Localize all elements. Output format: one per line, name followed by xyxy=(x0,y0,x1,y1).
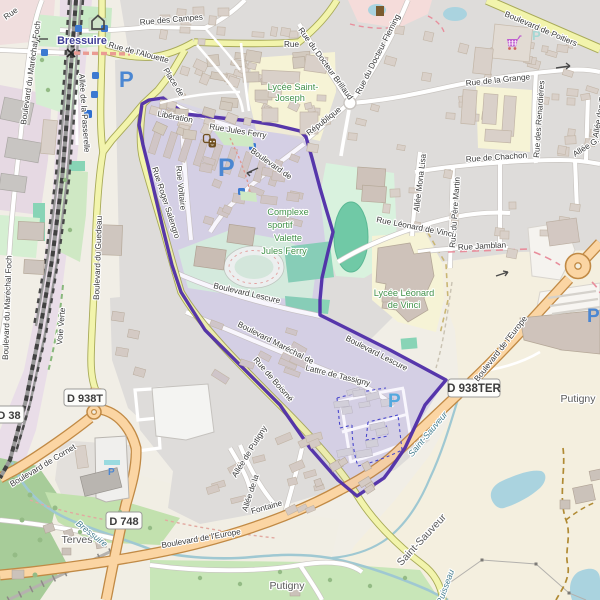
svg-text:Lycée Saint-: Lycée Saint- xyxy=(268,82,319,92)
svg-text:D 748: D 748 xyxy=(109,516,138,528)
svg-text:P: P xyxy=(108,467,115,478)
svg-text:Rue: Rue xyxy=(284,40,299,49)
svg-text:Complexe: Complexe xyxy=(267,207,308,217)
svg-text:D 938TER: D 938TER xyxy=(447,383,501,395)
svg-text:Lycée Léonard: Lycée Léonard xyxy=(374,288,434,298)
svg-text:P: P xyxy=(218,154,235,182)
svg-text:P: P xyxy=(388,391,401,412)
svg-text:Bressuire: Bressuire xyxy=(57,35,107,47)
svg-text:D 938T: D 938T xyxy=(67,393,103,405)
svg-text:sportif: sportif xyxy=(267,220,292,230)
svg-text:Jules Ferry: Jules Ferry xyxy=(261,246,307,256)
svg-text:P: P xyxy=(587,306,600,327)
svg-text:Valette: Valette xyxy=(274,233,302,243)
svg-text:Joseph: Joseph xyxy=(275,93,305,103)
svg-text:P: P xyxy=(119,67,134,92)
svg-text:Putigny: Putigny xyxy=(269,580,305,592)
svg-text:Putigny: Putigny xyxy=(560,393,596,405)
svg-text:de Vinci: de Vinci xyxy=(388,300,421,310)
svg-text:D 38: D 38 xyxy=(0,410,21,422)
